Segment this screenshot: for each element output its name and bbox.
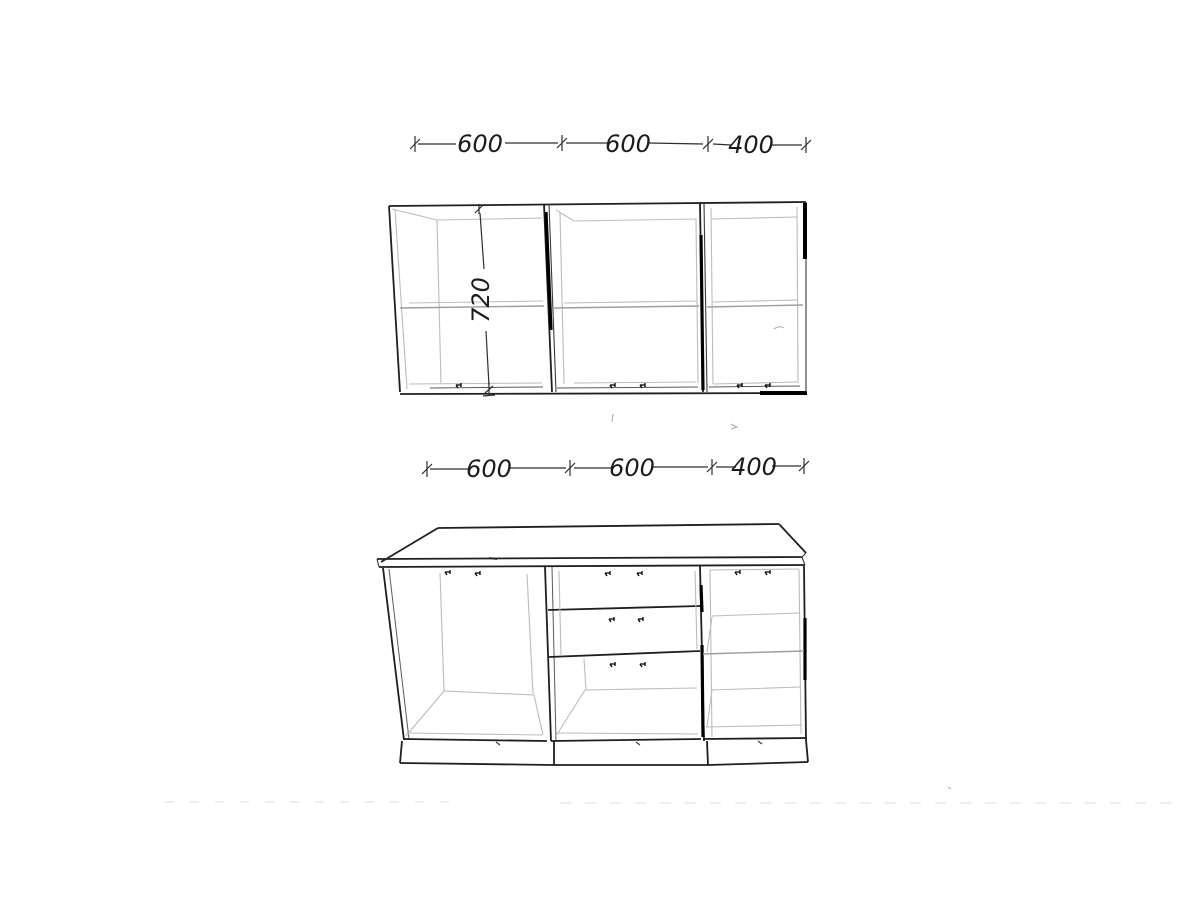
screw-mark [640, 662, 645, 667]
counter-right-edge [779, 524, 806, 553]
wall-cabinet-600-middle [554, 210, 699, 388]
inner-line [556, 690, 585, 736]
screw-mark [638, 617, 643, 622]
inner-line [797, 207, 798, 383]
plinth-edge [707, 741, 708, 765]
inner-line [560, 213, 564, 384]
base-cabinet-600-left [406, 570, 543, 736]
inner-line [574, 219, 697, 221]
drawing-canvas: 600 600 400 [0, 0, 1200, 900]
inner-line [559, 571, 561, 655]
plinth-edge [806, 740, 808, 762]
counter-left-cap [377, 559, 379, 567]
divider-panel [704, 203, 707, 392]
screw-mark [765, 570, 770, 575]
wall-cabinets-elevation: 720 [389, 202, 807, 429]
drawer-divider-line [548, 606, 700, 610]
upper-dim-label-1: 600 [457, 130, 503, 158]
bottom-edge [703, 738, 807, 739]
screw-mark [445, 570, 450, 575]
shelf-front-edge [703, 651, 804, 654]
inner-line [711, 208, 713, 384]
scan-speck [496, 742, 500, 745]
counter-front-edge [377, 557, 802, 559]
scan-speck [731, 424, 737, 429]
scan-speck [758, 741, 762, 744]
dim-segment [486, 331, 489, 386]
lower-dim-label-1: 600 [466, 455, 512, 483]
divider-panel-bold [701, 235, 703, 390]
counter-back-edge [381, 528, 438, 562]
left-edge [389, 206, 400, 392]
inner-line [574, 382, 696, 383]
inner-line [527, 574, 533, 694]
inner-line [437, 220, 441, 383]
shelf-line [712, 613, 800, 616]
countertop [377, 524, 806, 567]
bottom-edge [403, 739, 547, 741]
inner-line [440, 573, 444, 691]
inner-line [444, 691, 534, 695]
dim-tick [801, 137, 811, 153]
height-dimension-720: 720 [467, 204, 495, 396]
inner-line [695, 571, 697, 649]
scan-smudge [774, 327, 784, 329]
counter-right-cap [802, 553, 806, 557]
inner-line [406, 733, 542, 735]
divider-panel-bold [702, 645, 703, 737]
dim-segment [649, 143, 703, 144]
scan-speck [636, 742, 640, 745]
inner-line [556, 210, 574, 221]
screw-mark [765, 383, 770, 388]
plinth [400, 740, 808, 765]
base-cabinet-400-right [703, 569, 804, 737]
inner-bottom-line [430, 387, 543, 388]
bottom-edge [551, 739, 701, 741]
counter-right-cap [802, 557, 805, 565]
inner-line [406, 691, 444, 736]
inner-bottom-line [709, 386, 800, 387]
dim-tick [483, 395, 495, 396]
shelf-line [564, 301, 697, 303]
scan-speck [612, 414, 613, 422]
wall-cabinet-400-right [707, 207, 803, 388]
plinth-bottom-edge [400, 762, 808, 765]
dim-tick [703, 136, 713, 152]
drawer-divider-line [549, 651, 700, 657]
screw-mark [605, 571, 610, 576]
left-edge [383, 568, 404, 740]
inner-line [710, 569, 799, 570]
left-edge-inner [389, 569, 409, 739]
upper-width-dimension-line: 600 600 400 [410, 130, 811, 159]
inner-line [711, 217, 797, 219]
screw-mark [637, 571, 642, 576]
inner-line [392, 209, 437, 220]
dim-tick [565, 460, 575, 476]
height-dim-label: 720 [467, 277, 495, 323]
shelf-front-edge [554, 306, 699, 308]
inner-line [557, 733, 698, 734]
drawer-base-600-middle [548, 571, 700, 736]
kitchen-cabinet-technical-drawing: 600 600 400 [0, 0, 1200, 900]
shelf-line [713, 300, 797, 302]
lower-width-dimension-line: 600 600 400 [422, 453, 809, 483]
divider-panel [552, 567, 556, 741]
screw-mark [735, 570, 740, 575]
inner-line [712, 687, 800, 690]
dim-tick [557, 135, 567, 151]
inner-line [706, 725, 802, 727]
bottom-edge [400, 393, 806, 394]
screw-mark [609, 617, 614, 622]
top-edge [389, 202, 806, 206]
inner-line [437, 218, 542, 220]
upper-dim-label-2: 600 [605, 130, 651, 158]
inner-line [409, 383, 542, 384]
divider-panel-bold [701, 585, 702, 612]
counter-band-bottom [379, 565, 805, 567]
inner-line [584, 659, 586, 690]
dim-segment [480, 213, 484, 269]
scan-speck [948, 787, 951, 789]
inner-bottom-line [557, 387, 698, 388]
dim-tick [707, 459, 717, 475]
lower-dim-label-2: 600 [609, 454, 655, 482]
inner-line [585, 688, 697, 690]
screw-mark [610, 662, 615, 667]
lower-dim-label-3: 400 [731, 453, 777, 481]
plinth-edge [400, 741, 402, 763]
inner-line [534, 695, 543, 735]
scan-dash [489, 558, 497, 559]
inner-line [713, 382, 797, 384]
base-cabinets-elevation [377, 524, 808, 765]
inner-line [395, 210, 407, 389]
divider-panel [545, 567, 551, 741]
scan-artifacts [165, 787, 1180, 803]
counter-back-edge [438, 524, 779, 528]
upper-dim-label-3: 400 [728, 131, 774, 159]
shelf-front-edge [707, 305, 803, 307]
screw-mark [475, 571, 480, 576]
